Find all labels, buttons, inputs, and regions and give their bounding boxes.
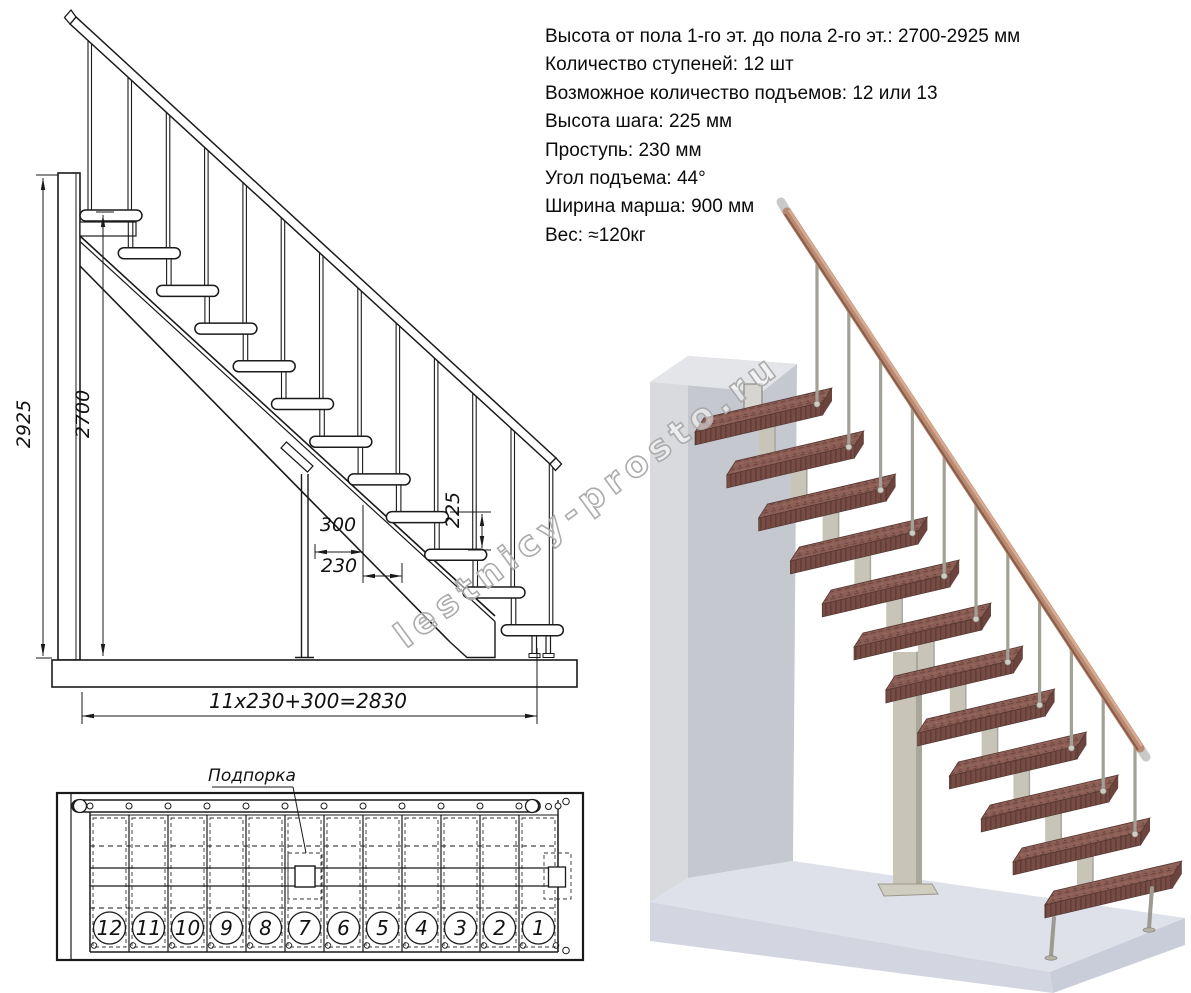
spec-block: Высота от пола 1-го эт. до пола 2-го эт.… <box>545 23 1105 250</box>
step-number: 3 <box>454 916 467 940</box>
step-number: 12 <box>97 916 122 940</box>
plan-drawing: Подпорка 12 11 10 9 8 7 6 5 4 3 2 1 <box>57 766 583 960</box>
render-3d-geometry <box>650 202 1185 993</box>
spec-line: Вес: ≈120кг <box>545 222 1105 250</box>
support-label: Подпорка <box>208 766 296 786</box>
render-3d <box>650 202 1185 993</box>
spec-line: Высота от пола 1-го эт. до пола 2-го эт.… <box>545 23 1105 51</box>
dim-run: 230 <box>321 555 357 577</box>
dim-rise: 225 <box>442 492 464 528</box>
elevation-geometry <box>36 10 577 724</box>
step-number: 11 <box>136 916 161 940</box>
dim-total-height: 2925 <box>13 400 35 448</box>
step-number: 10 <box>175 916 200 940</box>
elevation-drawing: 2925 2700 300 230 225 11x230+300=2830 <box>13 10 577 724</box>
spec-line: Проступь: 230 мм <box>545 137 1105 165</box>
spec-line: Угол подъема: 44° <box>545 165 1105 193</box>
step-number: 2 <box>493 916 506 940</box>
spec-line: Возможное количество подъемов: 12 или 13 <box>545 80 1105 108</box>
dim-total-run-formula: 11x230+300=2830 <box>209 689 407 713</box>
spec-line: Высота шага: 225 мм <box>545 108 1105 136</box>
step-number: 4 <box>415 916 428 940</box>
spec-line: Количество ступеней: 12 шт <box>545 51 1105 79</box>
dim-floor-height: 2700 <box>72 390 94 438</box>
step-number: 5 <box>376 916 389 940</box>
step-number: 7 <box>298 916 311 940</box>
step-number: 8 <box>259 916 272 940</box>
page-canvas: 2925 2700 300 230 225 11x230+300=2830 По… <box>0 0 1191 993</box>
step-number: 9 <box>220 916 233 940</box>
spec-line: Ширина марша: 900 мм <box>545 193 1105 221</box>
step-number: 1 <box>532 916 545 940</box>
dim-tread-depth: 300 <box>320 514 356 536</box>
step-number: 6 <box>337 916 350 940</box>
